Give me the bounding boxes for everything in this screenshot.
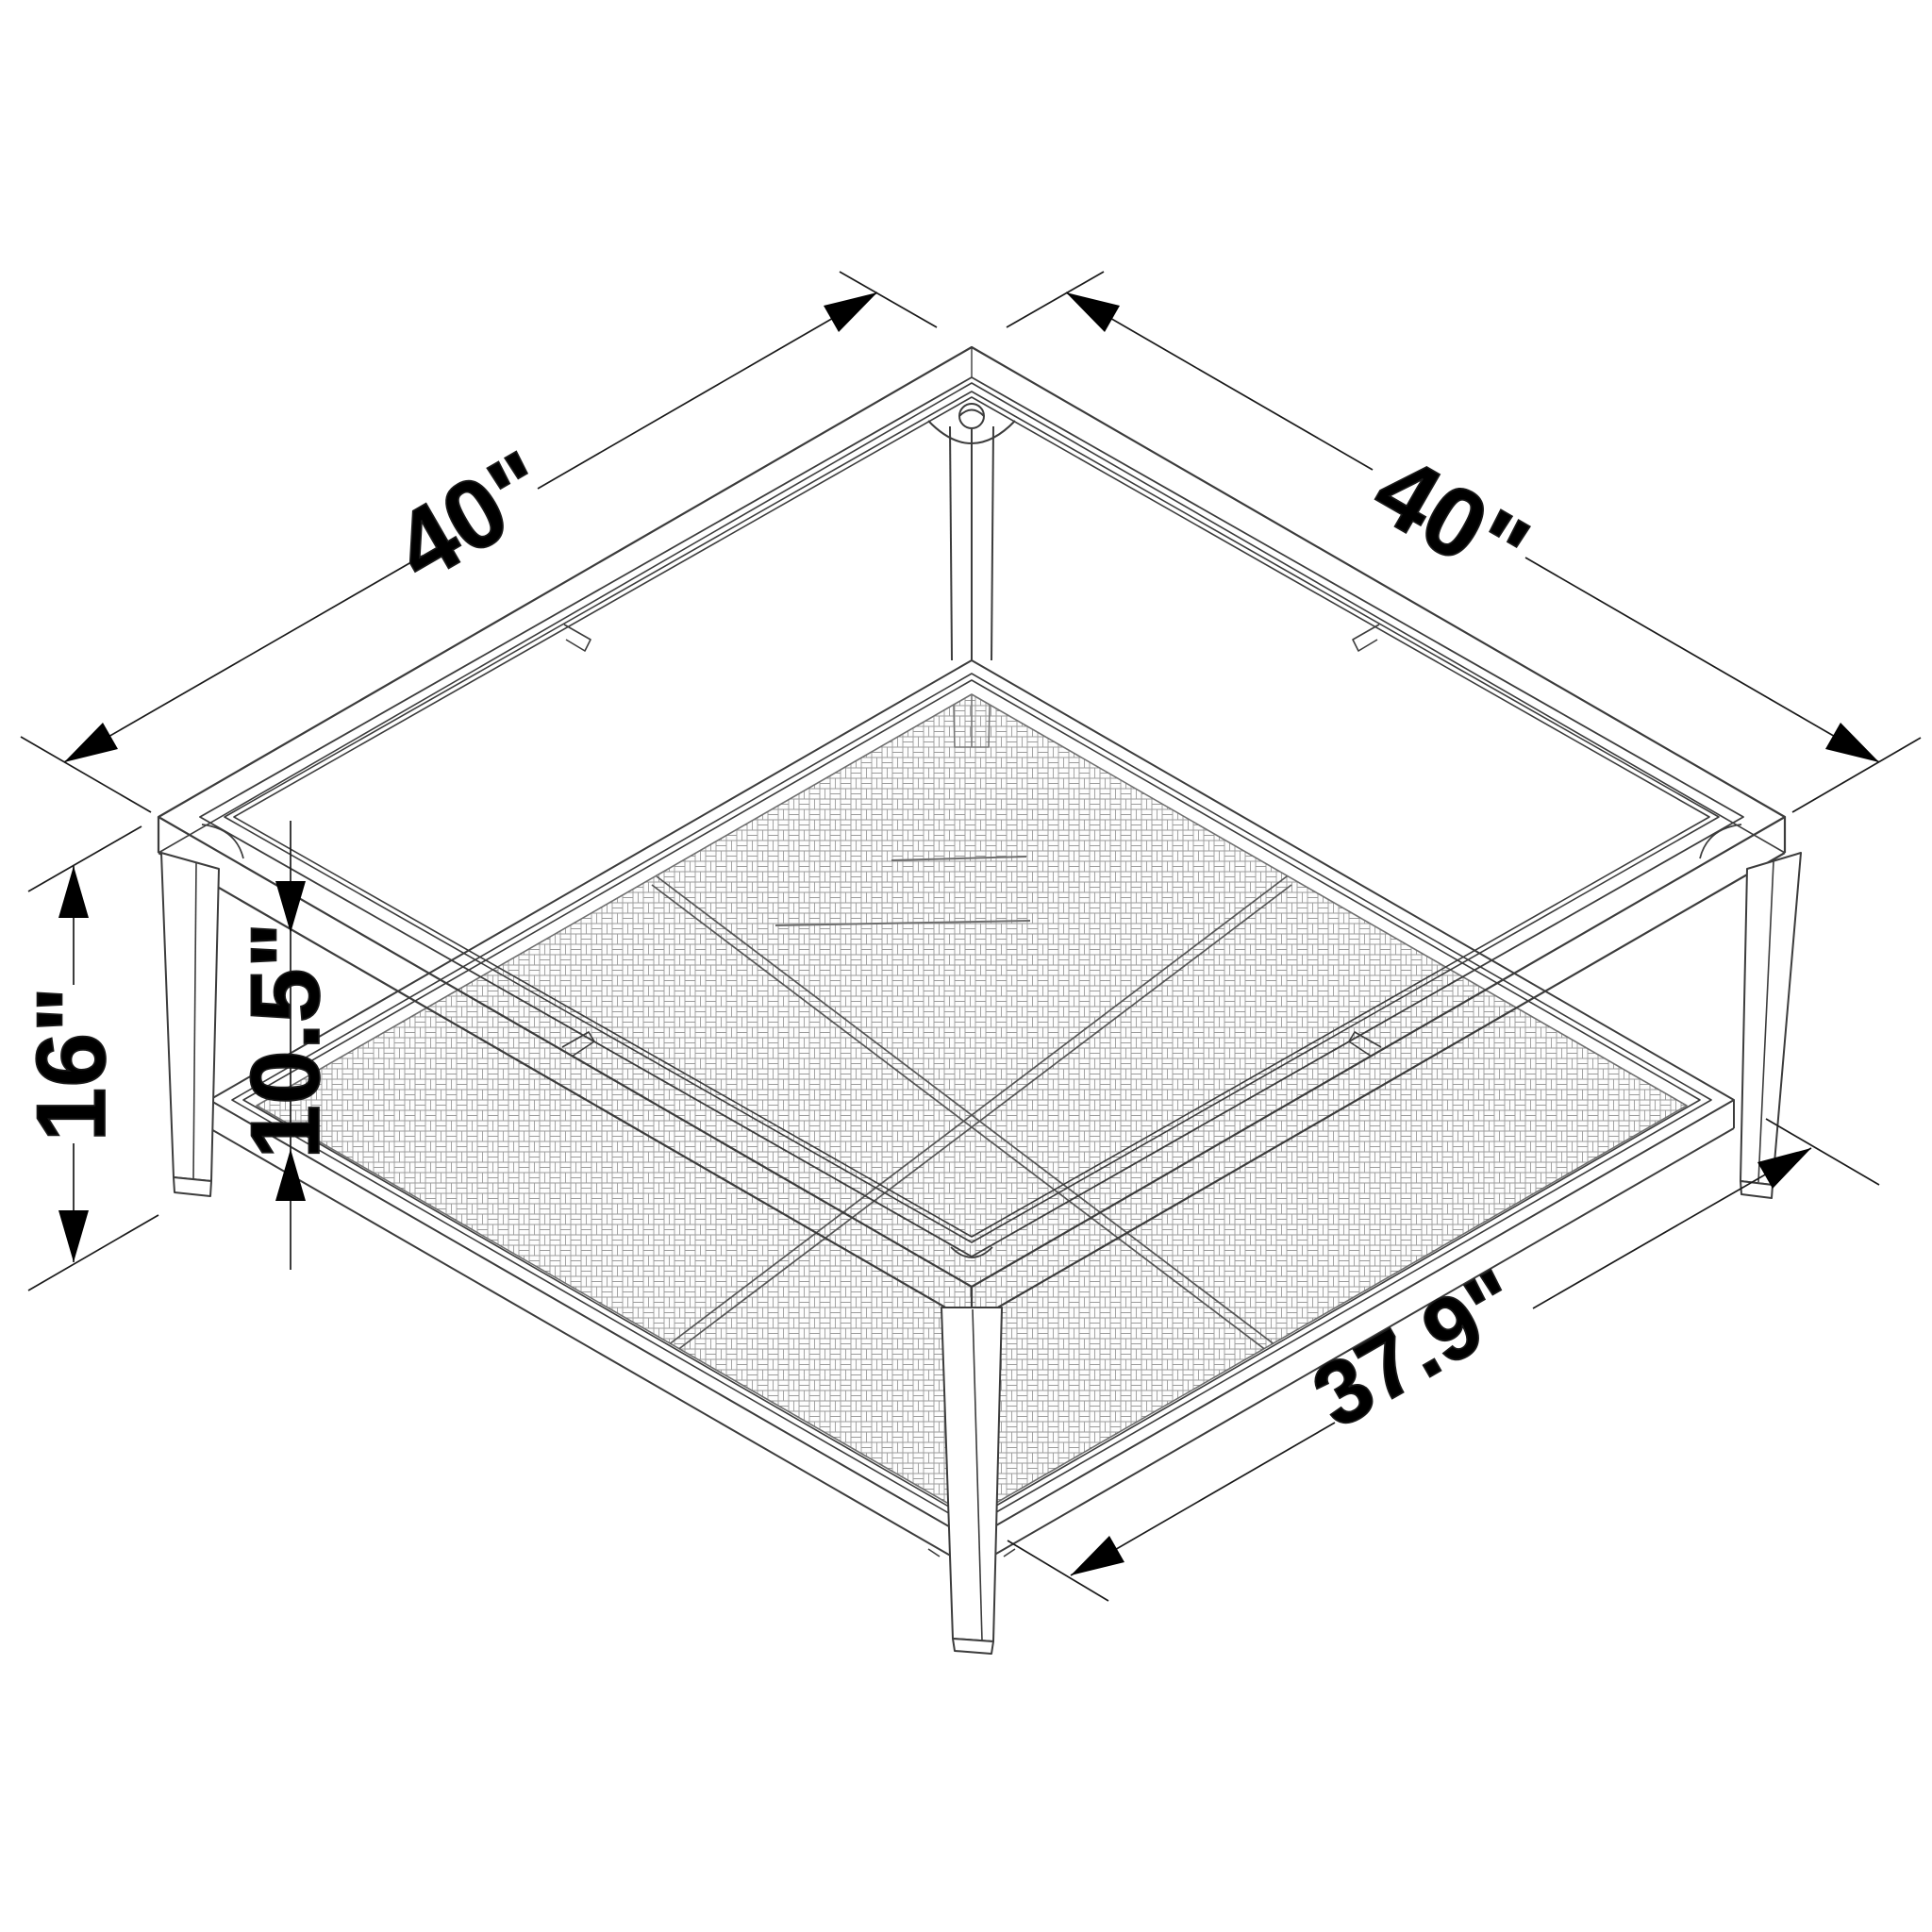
dimension-line	[1525, 558, 1879, 762]
technical-drawing: 40" 40" 16" 10.5"	[0, 0, 1932, 1932]
arrowhead	[64, 723, 118, 762]
dimension-label-height: 16"	[17, 987, 126, 1142]
leg-right	[1740, 853, 1801, 1198]
arrowhead	[58, 1210, 89, 1262]
leg-front	[941, 1307, 1002, 1654]
extension-line	[1008, 1541, 1108, 1601]
dimension-top-edge-right: 40"	[1007, 272, 1921, 812]
arrowhead	[58, 866, 89, 918]
drawing-page: 40" 40" 16" 10.5"	[0, 0, 1932, 1932]
dimension-overall-height: 16"	[17, 826, 158, 1291]
dimension-label-top-left: 40"	[377, 431, 567, 604]
dimension-label-clearance: 10.5"	[231, 922, 341, 1159]
dimension-label-top-right: 40"	[1357, 435, 1546, 608]
arrowhead	[1825, 723, 1879, 762]
extension-line	[28, 1215, 158, 1291]
dimension-top-edge-left: 40"	[21, 272, 937, 812]
leg-left	[161, 853, 219, 1196]
rear-leg	[928, 404, 1015, 660]
extension-line	[28, 826, 142, 891]
arrowhead	[824, 292, 877, 332]
rear-leg-cap	[959, 404, 984, 428]
arrowhead	[1071, 1536, 1124, 1575]
arrowhead	[1066, 292, 1120, 332]
